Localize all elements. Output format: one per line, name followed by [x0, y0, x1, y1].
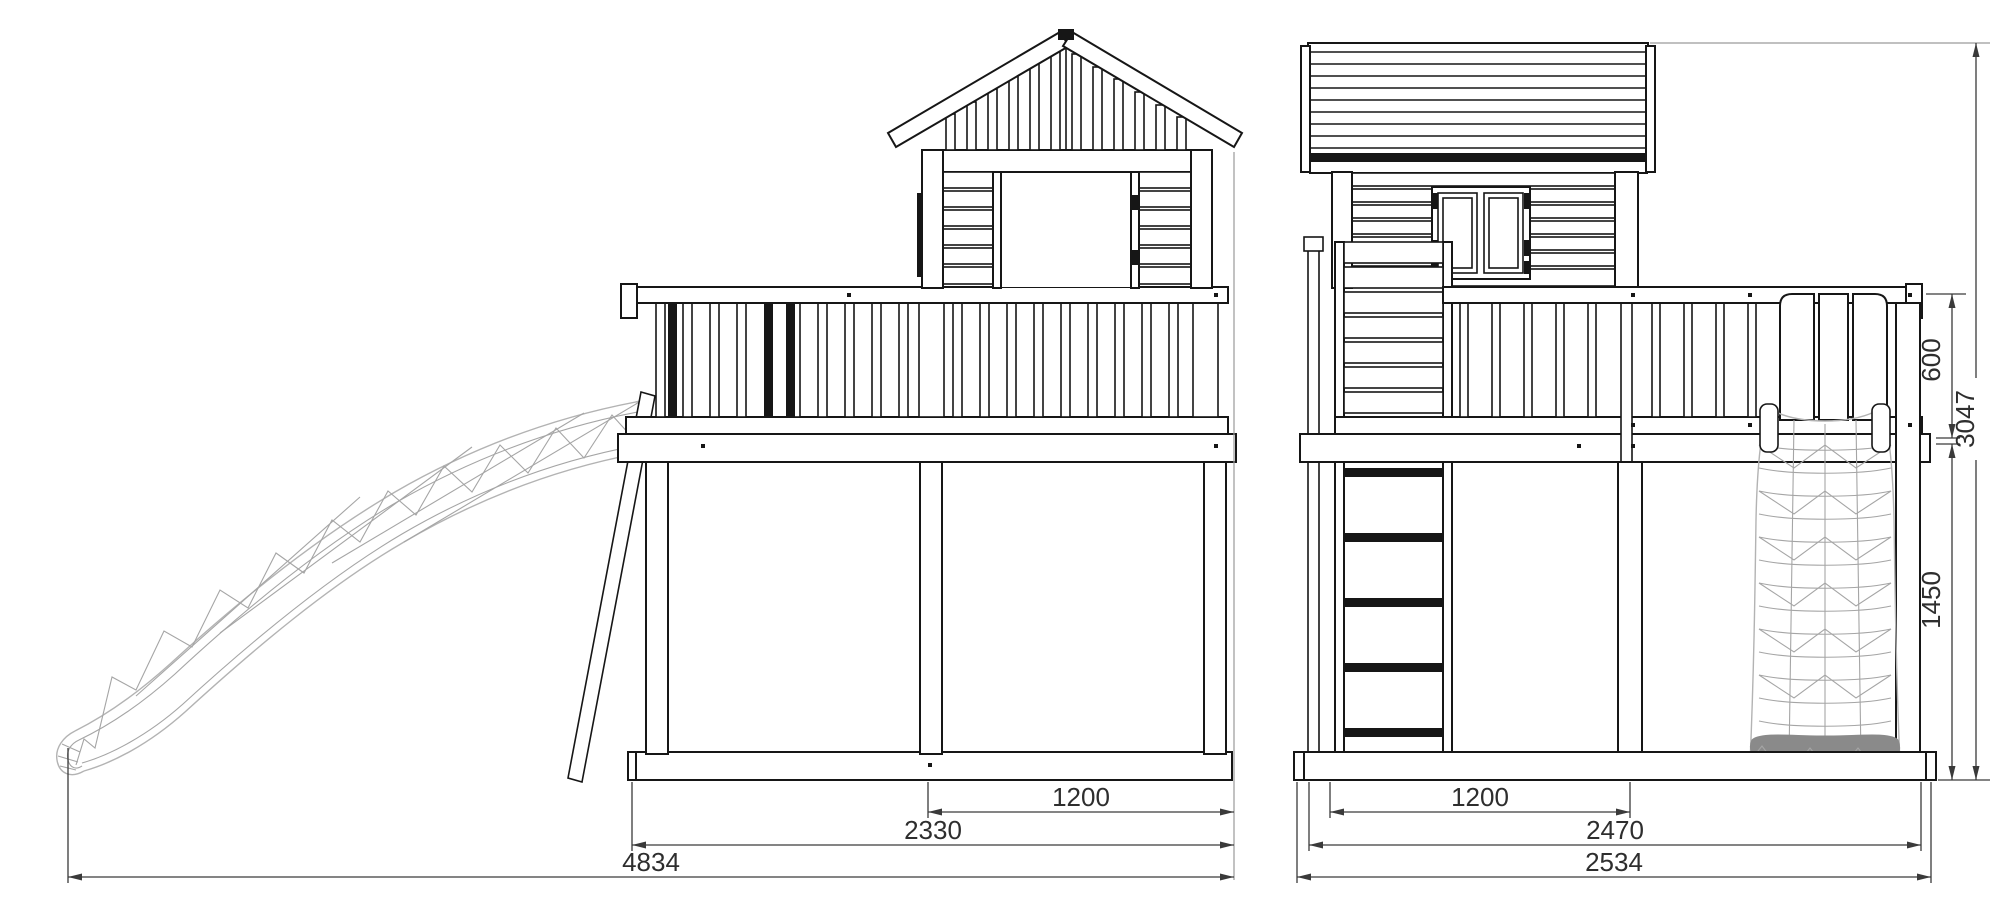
gable-slat [1177, 117, 1186, 150]
baluster [1716, 303, 1724, 417]
dim-label-platform-depth: 2330 [904, 815, 962, 845]
window-hinge-icon [1432, 193, 1438, 209]
deck-rim-joist [1300, 434, 1930, 462]
slide-bottom-rail-inner [82, 444, 645, 763]
ladder-rungs [1344, 468, 1443, 737]
arrowhead-icon [1973, 43, 1980, 57]
lower-frame [628, 462, 1232, 780]
arrowhead-icon [1220, 842, 1234, 849]
baluster [1007, 303, 1016, 417]
climb-plank [1344, 392, 1443, 413]
deck-rim-joist [618, 434, 1236, 462]
roof-fascia-dark-band [1306, 153, 1650, 161]
baluster [818, 303, 827, 417]
gable-slat [1072, 54, 1081, 150]
screw-dot [1748, 423, 1752, 427]
ladder-rung [1344, 663, 1443, 672]
bottom-plate-end-cap-right [1926, 752, 1936, 780]
baluster [1460, 303, 1468, 417]
slide-chord-3 [220, 447, 472, 633]
mid-post-slat [1621, 303, 1632, 462]
post-right [1204, 462, 1226, 754]
access-ladder-column [1304, 237, 1452, 780]
siding-plank [943, 267, 993, 284]
dim-label-railing-height: 600 [1916, 338, 1946, 381]
dim-label-frame-width: 2470 [1586, 815, 1644, 845]
climbing-wall-planks [1344, 242, 1443, 413]
gable-slat [1051, 51, 1060, 150]
post-slat-right [1193, 303, 1218, 417]
net-top-rail-cap-right [1872, 404, 1890, 452]
gable-slat [1093, 67, 1102, 150]
screw-dot [1748, 293, 1752, 297]
railing-end-cap [621, 284, 637, 318]
roof-end-cap-right [1646, 46, 1655, 172]
door-hinge-icon [1131, 250, 1139, 265]
bargeboard-right [1063, 32, 1242, 147]
baluster [1061, 303, 1070, 417]
gable-slat [1156, 105, 1165, 150]
bargeboard-left [888, 32, 1069, 147]
arrowhead-icon [1949, 766, 1956, 780]
slide-mesh [57, 401, 646, 775]
siding-plank [943, 229, 993, 245]
net-verticals [1789, 420, 1861, 762]
roof-eave-board [1310, 161, 1647, 173]
baluster [1169, 303, 1178, 417]
baluster [1684, 303, 1692, 417]
post-middle [1618, 462, 1642, 754]
arrowhead-icon [1309, 842, 1323, 849]
house-left-wall-siding [943, 172, 993, 284]
house-post-right [1191, 150, 1212, 288]
post-left [646, 462, 668, 754]
dim-label-total-width: 2534 [1585, 847, 1643, 877]
outer-post [1308, 240, 1319, 780]
siding-plank [1139, 191, 1191, 207]
ladder-rail-left [1335, 242, 1344, 780]
arrowhead-icon [1220, 809, 1234, 816]
arrowhead-icon [1973, 766, 1980, 780]
bottom-plate [1300, 752, 1930, 780]
arrowhead-icon [1949, 294, 1956, 308]
dim-label-total-height: 3047 [1950, 390, 1980, 448]
climb-plank [1344, 267, 1443, 288]
ladder-rung [1344, 533, 1443, 542]
siding-plank [943, 172, 993, 188]
baluster-dark [786, 303, 795, 417]
baluster-dark [668, 303, 677, 417]
screw-dot [1631, 293, 1635, 297]
screw-dot [1214, 293, 1218, 297]
baluster [683, 303, 692, 417]
baluster [1652, 303, 1660, 417]
slide-end-hatch [58, 744, 80, 770]
window-hinge-icon [1524, 240, 1530, 256]
screw-dot [1577, 444, 1581, 448]
arrowhead-icon [1330, 809, 1344, 816]
baluster [1115, 303, 1124, 417]
siding-plank [1139, 210, 1191, 226]
gable-slat [1009, 76, 1018, 150]
dim-label-front-bay: 1200 [1451, 782, 1509, 812]
baluster [1088, 303, 1097, 417]
gable-slat [946, 114, 955, 150]
door-hinge-icon [1131, 195, 1139, 210]
ladder-rail-right [1443, 242, 1452, 780]
technical-drawing-canvas: 1200 2330 4834 1200 2470 [0, 0, 2000, 910]
slide-chord-2 [332, 413, 584, 563]
gable-slat [988, 89, 997, 150]
baluster [710, 303, 719, 417]
front-view-height-dimensions: 600 1450 3047 [1916, 43, 1990, 780]
bottom-plate-end-cap-left [1294, 752, 1304, 780]
railing-top-rail [1443, 287, 1922, 303]
baluster [1142, 303, 1151, 417]
arrowhead-icon [1907, 842, 1921, 849]
climb-plank [1344, 342, 1443, 363]
baluster [899, 303, 908, 417]
baluster [1492, 303, 1500, 417]
baluster [1588, 303, 1596, 417]
screw-dot [1631, 423, 1635, 427]
baluster [1034, 303, 1043, 417]
baluster [845, 303, 854, 417]
roof-end-cap-left [1301, 46, 1310, 172]
screw-dot [928, 763, 932, 767]
dimension-drawing: 1200 2330 4834 1200 2470 [0, 0, 2000, 910]
screw-dot [1908, 293, 1912, 297]
dim-label-side-bay: 1200 [1052, 782, 1110, 812]
door-frame-right [1131, 172, 1139, 288]
house-post-left [922, 150, 943, 288]
baluster [1556, 303, 1564, 417]
house-right-wall-siding [1139, 172, 1191, 284]
dim-label-platform-height: 1450 [1916, 571, 1946, 629]
dim-label-total-length: 4834 [622, 847, 680, 877]
window-pane-right [1484, 193, 1523, 273]
climb-plank [1344, 317, 1443, 338]
slide-top-rail [75, 401, 641, 731]
front-elevation-view [1294, 43, 1936, 780]
screw-dot [701, 444, 705, 448]
screw-dot [1908, 423, 1912, 427]
siding-plank [1139, 267, 1191, 284]
window-hinge-icon [1524, 193, 1530, 209]
front-view-bottom-dimensions: 1200 2470 2534 [1297, 782, 1931, 883]
slide-top-rail-inner [79, 411, 643, 740]
gable-lintel [943, 150, 1191, 172]
gable-slat [1135, 92, 1144, 150]
railing-top-rail [626, 287, 1228, 303]
arrowhead-icon [1220, 874, 1234, 881]
roof [1301, 43, 1655, 173]
siding-plank [1352, 173, 1615, 186]
baluster-dark [764, 303, 773, 417]
gable-slat [1030, 64, 1039, 150]
baluster [980, 303, 989, 417]
door-frame-left [993, 172, 1001, 288]
climb-plank [1344, 242, 1443, 263]
siding-plank [943, 248, 993, 264]
baluster [1748, 303, 1756, 417]
arrowhead-icon [1297, 874, 1311, 881]
screw-dot [1631, 444, 1635, 448]
playhouse [888, 29, 1242, 288]
baluster [872, 303, 881, 417]
bottom-plate [636, 752, 1232, 780]
ladder-rung [1344, 728, 1443, 737]
climb-plank [1344, 292, 1443, 313]
slide-flange-right [1853, 294, 1887, 420]
slide-chord-4 [136, 497, 360, 696]
slide-end-profile [1780, 294, 1887, 420]
arrowhead-icon [68, 874, 82, 881]
post-slat-middle [919, 303, 944, 417]
gable-slat [967, 102, 976, 150]
climb-plank [1344, 367, 1443, 388]
slide-flange-left [1780, 294, 1814, 420]
screw-dot [847, 293, 851, 297]
baluster [656, 303, 665, 417]
ladder-rung [1344, 468, 1443, 477]
door-opening [1002, 173, 1130, 287]
side-elevation-view [57, 29, 1242, 782]
baluster [1524, 303, 1532, 417]
arrowhead-icon [1917, 874, 1931, 881]
siding-plank [1139, 229, 1191, 245]
slide-bottom-rail [84, 452, 646, 771]
post-middle [920, 462, 942, 754]
window-hinge-icon [1524, 261, 1530, 274]
siding-plank [943, 210, 993, 226]
siding-plank [1139, 172, 1191, 188]
slide-channel-board [1819, 294, 1848, 420]
slide-truss-zigzag [76, 415, 640, 765]
net-top-rail-cap-left [1760, 404, 1778, 452]
ridge-cap [1058, 29, 1074, 40]
gable-slat [1114, 79, 1123, 150]
deck-board [626, 417, 1228, 434]
screw-dot [1214, 444, 1218, 448]
wall-post-right [1615, 172, 1638, 288]
ladder-rung [1344, 598, 1443, 607]
baluster [737, 303, 746, 417]
outer-post-bracket [1304, 237, 1323, 251]
railing-balusters [656, 303, 1218, 417]
siding-plank [1139, 248, 1191, 264]
baluster [953, 303, 962, 417]
siding-plank [943, 191, 993, 207]
